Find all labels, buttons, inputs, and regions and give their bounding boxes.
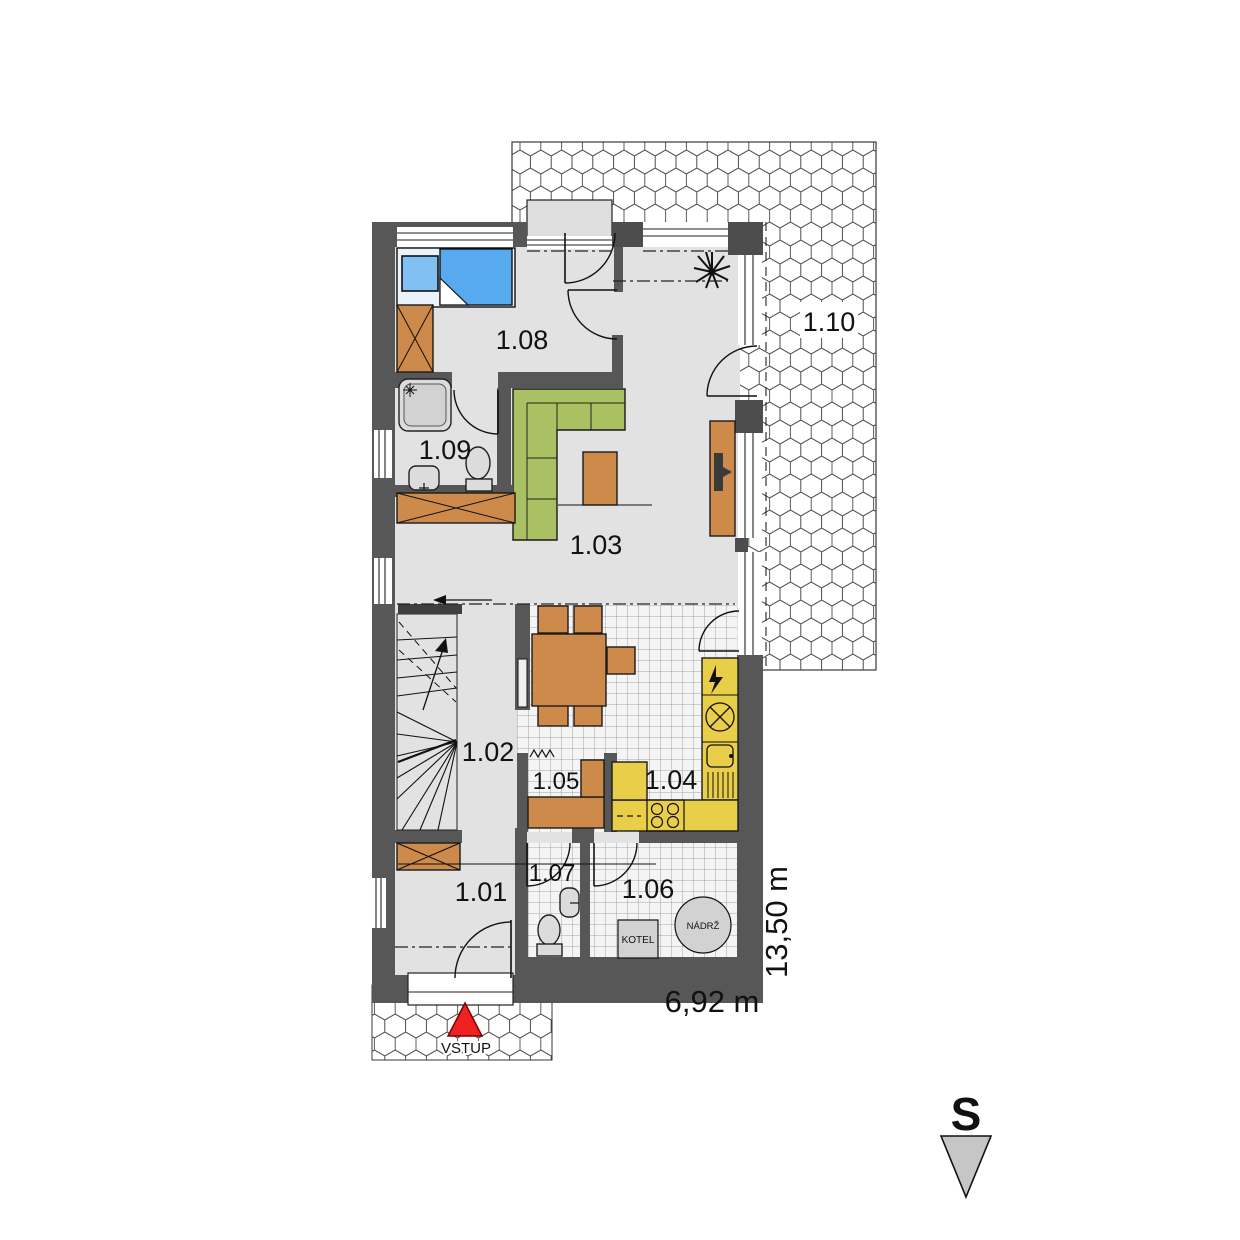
room-label-1-04: 1.04 [645, 765, 698, 795]
radiator [518, 659, 527, 707]
entrance-step [408, 973, 513, 1005]
room-label-1-08: 1.08 [496, 325, 549, 355]
tv [714, 453, 723, 491]
north-label: S [951, 1088, 982, 1140]
room-label-1-01: 1.01 [455, 877, 508, 907]
dimension-depth: 13,50 m [759, 866, 794, 978]
bed-pillow [402, 256, 438, 291]
north-triangle-icon [941, 1136, 991, 1197]
stair-banister [398, 604, 462, 614]
room-label-1-06: 1.06 [622, 874, 675, 904]
floor-plan-drawing: KOTEL NÁDRŽ [0, 0, 1240, 1240]
entrance-label: VSTUP [441, 1040, 491, 1057]
dining-table [532, 634, 606, 706]
dining-chair [574, 606, 602, 633]
dining-chair [607, 647, 635, 674]
toilet-tank [466, 479, 492, 491]
tank-label: NÁDRŽ [687, 921, 720, 932]
wc-toilet-tank [537, 944, 562, 956]
room-label-1-05: 1.05 [533, 768, 580, 795]
boiler-label: KOTEL [622, 935, 655, 946]
kitchen-counter-corner [612, 762, 647, 800]
room-label-1-02: 1.02 [462, 737, 515, 767]
north-arrow: S [941, 1088, 991, 1197]
floor-plan-page: KOTEL NÁDRŽ [0, 0, 1240, 1240]
coffee-table [583, 452, 617, 505]
room-label-1-07: 1.07 [529, 860, 576, 887]
room-label-1-10: 1.10 [803, 307, 856, 337]
wc-toilet-bowl [538, 915, 560, 945]
room-label-1-09: 1.09 [419, 435, 472, 465]
dining-chair [538, 606, 568, 633]
room-label-1-03: 1.03 [570, 530, 623, 560]
dimension-width: 6,92 m [665, 984, 760, 1019]
